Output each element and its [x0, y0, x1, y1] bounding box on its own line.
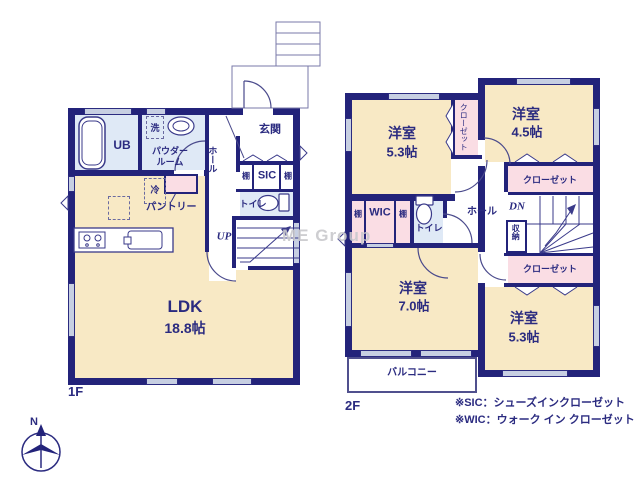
label-pantry: パントリー: [146, 202, 197, 214]
room-ldk-under-stairs: [236, 270, 293, 378]
window: [593, 108, 600, 146]
label-ldk-size: 18.8帖: [164, 320, 205, 336]
wall: [394, 201, 396, 243]
window: [84, 108, 132, 115]
window: [146, 378, 178, 385]
label-hall-1f: ホール: [207, 146, 217, 173]
window: [516, 78, 571, 85]
room-ldk-under-hall: [209, 281, 236, 378]
wall: [236, 216, 300, 220]
entrance-door-opening: [243, 108, 273, 115]
wall: [508, 162, 593, 166]
label-entrance: 玄関: [259, 124, 281, 137]
label-shelf-2f-left: 棚: [354, 209, 362, 218]
label-ub: UB: [113, 139, 130, 153]
label-stairs-up: UP: [217, 231, 232, 244]
label-wic: WIC: [369, 207, 390, 220]
wall: [68, 378, 300, 385]
label-bed2-size: 4.5帖: [511, 126, 542, 141]
label-washer: 洗: [150, 123, 159, 133]
label-shelf-2f-right: 棚: [399, 209, 407, 218]
note-sic: ※SIC：シューズインクローゼット: [455, 397, 625, 410]
window: [345, 272, 352, 327]
balcony-door: [360, 350, 412, 357]
stairs-2f: [527, 196, 593, 253]
wall: [451, 155, 482, 159]
label-closet2: クローゼット: [523, 175, 577, 185]
stairs-dn-arrowhead: [567, 204, 576, 215]
window: [212, 378, 252, 385]
pantry-box: [164, 174, 198, 194]
wall: [205, 115, 209, 252]
entrance-door-arc: [244, 81, 271, 108]
wall: [478, 283, 485, 377]
window: [388, 93, 440, 100]
wall: [236, 189, 300, 192]
wall: [232, 216, 236, 268]
wall: [138, 115, 142, 170]
room-toilet-2f: [414, 198, 443, 243]
wall: [504, 162, 508, 192]
label-bed3: 洋室: [399, 280, 427, 296]
label-bed1-size: 5.3帖: [386, 146, 417, 161]
balcony-door: [420, 350, 472, 357]
wall: [345, 194, 455, 201]
porch-steps: [232, 22, 320, 108]
label-fridge: 冷: [150, 185, 159, 195]
wall: [68, 108, 75, 385]
wall: [236, 161, 300, 165]
label-sic: SIC: [258, 170, 276, 183]
label-floor-2f: 2F: [345, 399, 360, 414]
note-wic: ※WIC：ウォーク イン クローゼット: [455, 414, 635, 427]
wall: [504, 253, 593, 256]
entrance-step-line: [226, 116, 244, 158]
wall: [451, 100, 455, 158]
label-hall-2f: ホール: [467, 206, 497, 218]
label-powder-2: ルーム: [157, 157, 184, 167]
label-bed4-size: 5.3帖: [508, 331, 539, 346]
label-bed4: 洋室: [510, 310, 538, 326]
window: [502, 370, 568, 377]
room-bed4: [485, 287, 593, 370]
label-storage: 収納: [511, 224, 520, 240]
window: [68, 176, 75, 192]
watermark: ME Group: [282, 226, 371, 246]
ldk-dashed-box: [108, 196, 130, 220]
label-floor-1f: 1F: [68, 385, 83, 400]
label-closet3: クローゼット: [523, 264, 577, 274]
label-bed2: 洋室: [512, 106, 540, 122]
floorplan-canvas: UB 洗 パウダー ルーム ホール 玄関 棚 SIC 棚 トイレ 冷 パントリー…: [0, 0, 640, 480]
compass-north-label: N: [30, 416, 38, 429]
wall: [252, 163, 254, 189]
label-stairs-dn: DN: [509, 201, 525, 214]
label-shelf-1f-right: 棚: [284, 171, 292, 180]
window: [146, 108, 166, 115]
label-bed3-size: 7.0帖: [398, 300, 429, 315]
compass-icon: [22, 424, 60, 471]
window: [68, 283, 75, 337]
wall: [478, 85, 485, 140]
wall: [410, 194, 414, 248]
wall: [236, 136, 240, 172]
window: [345, 118, 352, 152]
label-toilet-1f: トイレ: [239, 199, 266, 209]
wall: [504, 283, 593, 287]
label-ldk: LDK: [168, 297, 203, 317]
label-powder-1: パウダー: [152, 146, 188, 156]
label-closet1: クローゼット: [459, 103, 468, 151]
wall: [279, 163, 281, 189]
room-bed2: [485, 85, 593, 162]
wall: [248, 266, 300, 270]
label-bed1: 洋室: [388, 125, 416, 141]
label-toilet-2f: トイレ: [415, 223, 442, 233]
wall: [443, 194, 447, 218]
label-balcony: バルコニー: [387, 367, 437, 379]
label-shelf-1f-left: 棚: [242, 171, 250, 180]
window: [593, 305, 600, 347]
wall: [508, 192, 593, 195]
